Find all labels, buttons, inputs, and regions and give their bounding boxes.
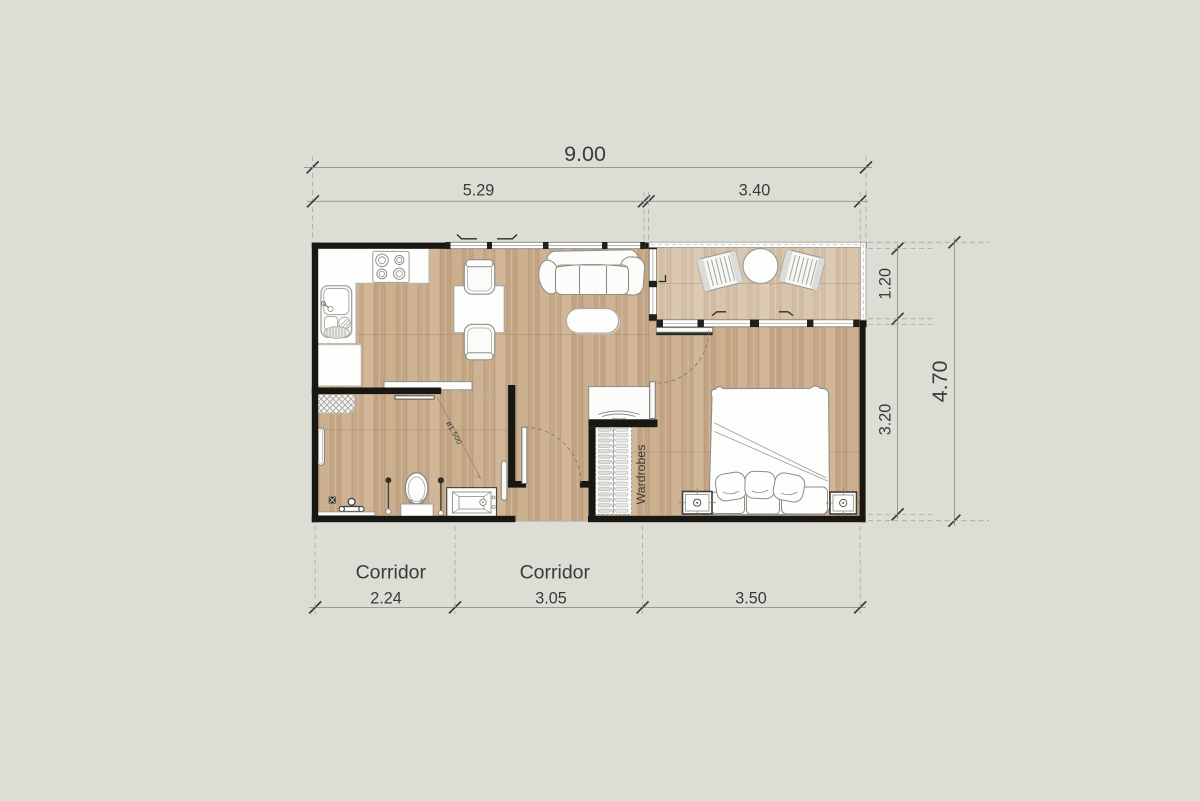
svg-text:Corridor: Corridor <box>520 562 591 584</box>
svg-text:2.24: 2.24 <box>370 590 402 608</box>
svg-text:4.70: 4.70 <box>928 360 952 402</box>
svg-text:1.20: 1.20 <box>877 268 895 300</box>
svg-text:3.50: 3.50 <box>735 590 767 608</box>
svg-text:Wardrobes: Wardrobes <box>634 445 648 505</box>
svg-text:5.29: 5.29 <box>463 182 495 200</box>
svg-text:3.20: 3.20 <box>877 404 895 436</box>
svg-text:9.00: 9.00 <box>564 142 606 166</box>
svg-text:3.05: 3.05 <box>535 590 567 608</box>
svg-text:3.40: 3.40 <box>739 182 771 200</box>
svg-text:Corridor: Corridor <box>356 562 427 584</box>
